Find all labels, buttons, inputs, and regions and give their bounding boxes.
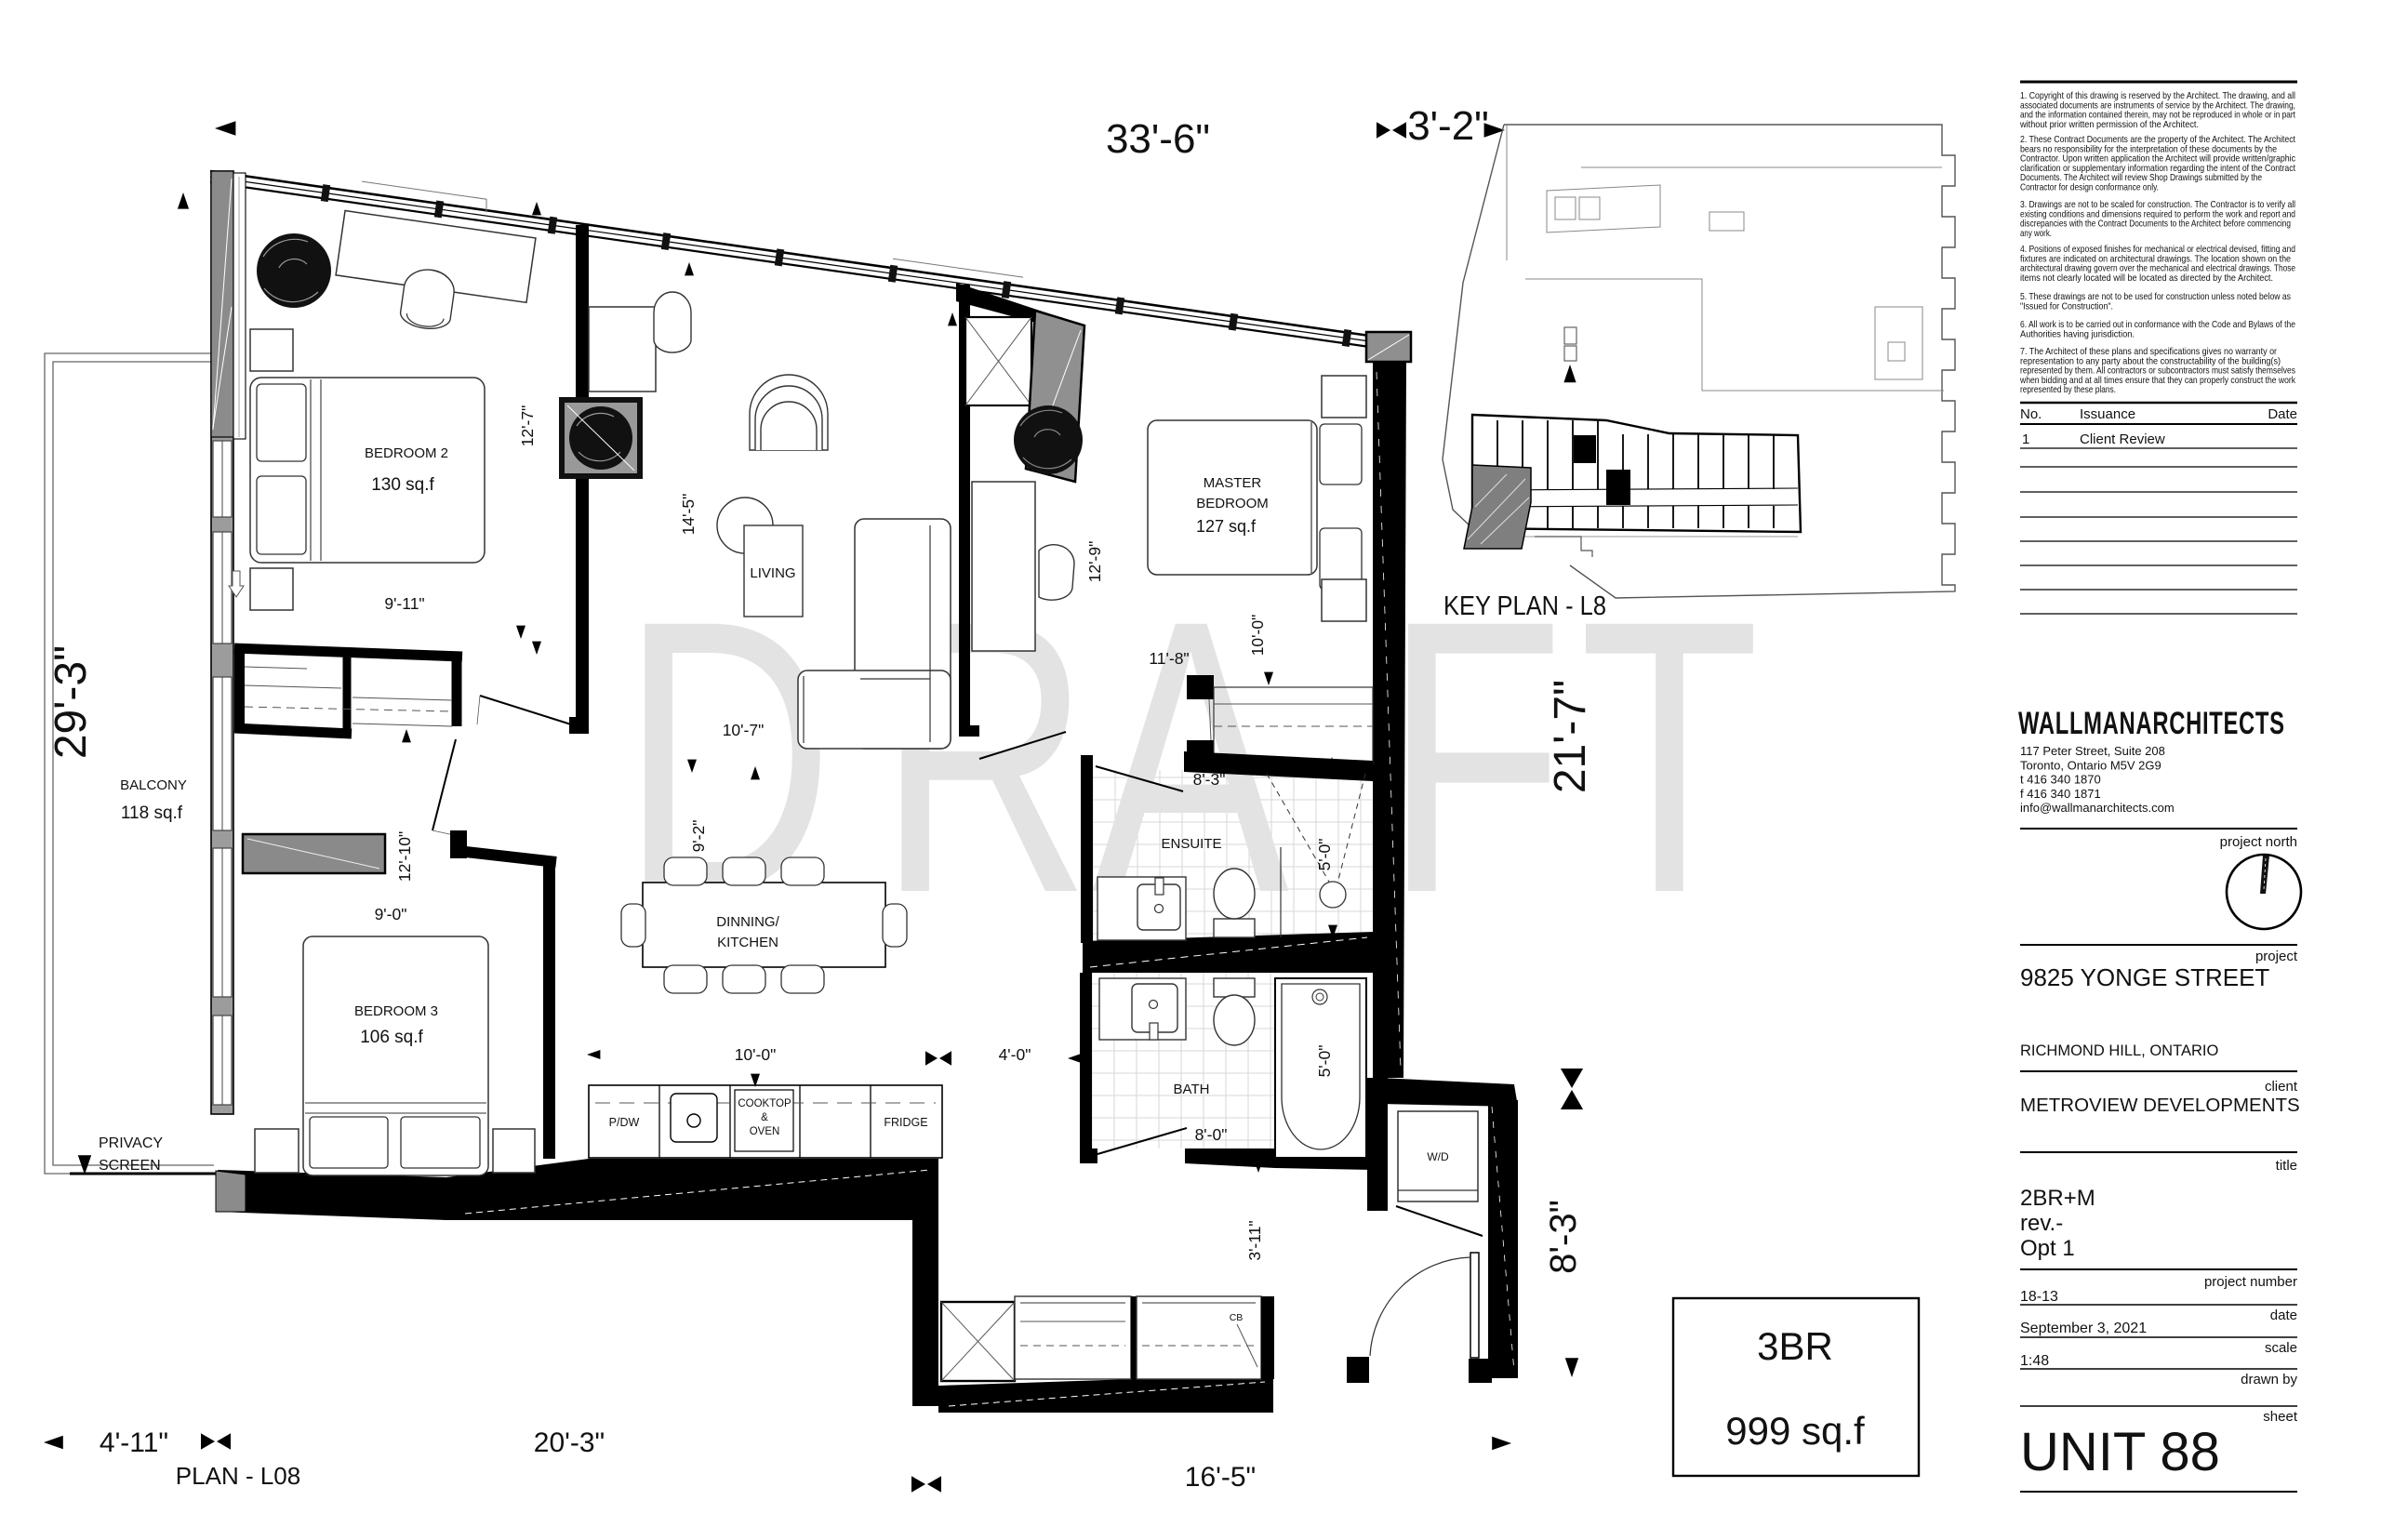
svg-text:BALCONY: BALCONY — [120, 777, 187, 793]
svg-text:9'-0": 9'-0" — [375, 905, 407, 923]
svg-text:info@wallmanarchitects.com: info@wallmanarchitects.com — [2020, 801, 2175, 815]
svg-text:sheet: sheet — [2263, 1409, 2298, 1425]
svg-text:LIVING: LIVING — [750, 565, 795, 581]
svg-text:project north: project north — [2220, 834, 2297, 850]
svg-text:10'-0": 10'-0" — [1248, 615, 1267, 657]
svg-text:PLAN - L08: PLAN - L08 — [176, 1462, 300, 1490]
svg-text:Date: Date — [2268, 406, 2297, 422]
svg-text:FRIDGE: FRIDGE — [884, 1116, 927, 1129]
svg-text:t 416 340 1870: t 416 340 1870 — [2020, 773, 2101, 787]
svg-text:drawn by: drawn by — [2241, 1372, 2297, 1387]
svg-text:project: project — [2255, 949, 2298, 964]
svg-text:METROVIEW DEVELOPMENTS: METROVIEW DEVELOPMENTS — [2020, 1095, 2300, 1116]
svg-text:4'-11": 4'-11" — [100, 1427, 168, 1458]
svg-text:ENSUITE: ENSUITE — [1161, 836, 1221, 852]
svg-text:999 sq.f: 999 sq.f — [1725, 1409, 1865, 1453]
svg-text:106 sq.f: 106 sq.f — [360, 1028, 423, 1047]
svg-text:BEDROOM 3: BEDROOM 3 — [354, 1003, 438, 1019]
svg-text:1: 1 — [2022, 431, 2029, 447]
svg-text:discrepancies with the Contrac: discrepancies with the Contract Document… — [2020, 219, 2291, 230]
svg-text:18-13: 18-13 — [2020, 1289, 2058, 1305]
svg-text:items not clearly located will: items not clearly located will be locate… — [2020, 272, 2273, 284]
svg-text:rev.-: rev.- — [2020, 1211, 2063, 1236]
svg-text:COOKTOP: COOKTOP — [738, 1098, 791, 1109]
svg-text:KITCHEN: KITCHEN — [717, 935, 778, 950]
svg-text:Authorities having jurisdictio: Authorities having jurisdiction. — [2020, 328, 2135, 339]
svg-text:12'-9": 12'-9" — [1085, 541, 1104, 583]
svg-text:BEDROOM: BEDROOM — [1196, 496, 1269, 511]
svg-text:RICHMOND HILL, ONTARIO: RICHMOND HILL, ONTARIO — [2020, 1042, 2218, 1059]
svg-text:16'-5": 16'-5" — [1185, 1462, 1256, 1493]
svg-text:10'-0": 10'-0" — [735, 1045, 777, 1064]
svg-text:CB: CB — [1230, 1312, 1244, 1323]
svg-text:8'-0": 8'-0" — [1195, 1125, 1228, 1144]
svg-text:any work.: any work. — [2020, 228, 2052, 239]
svg-text:BEDROOM 2: BEDROOM 2 — [365, 445, 448, 461]
svg-text:9'-11": 9'-11" — [384, 594, 424, 613]
svg-text:3BR: 3BR — [1757, 1324, 1833, 1368]
svg-text:11'-8": 11'-8" — [1149, 649, 1189, 668]
svg-text:scale: scale — [2265, 1340, 2297, 1356]
svg-text:130 sq.f: 130 sq.f — [371, 475, 434, 495]
svg-text:f 416 340 1871: f 416 340 1871 — [2020, 787, 2101, 801]
svg-text:represented by these plans.: represented by these plans. — [2020, 384, 2116, 395]
svg-text:Client Review: Client Review — [2080, 431, 2165, 447]
svg-text:KEY PLAN - L8: KEY PLAN - L8 — [1443, 591, 1606, 621]
svg-text:14'-5": 14'-5" — [679, 494, 698, 536]
svg-text:SCREEN: SCREEN — [99, 1158, 161, 1174]
svg-text:2BR+M: 2BR+M — [2020, 1186, 2095, 1211]
svg-text:Contractor for design conforma: Contractor for design conformance only. — [2020, 182, 2159, 193]
svg-text:8'-3": 8'-3" — [1543, 1200, 1584, 1274]
svg-text:12'-7": 12'-7" — [518, 405, 537, 447]
svg-text:8'-3": 8'-3" — [1193, 770, 1226, 789]
svg-text:3'-2": 3'-2" — [1407, 103, 1489, 149]
svg-text:OVEN: OVEN — [750, 1126, 780, 1137]
svg-text:"Issued for Construction".: "Issued for Construction". — [2020, 300, 2113, 312]
svg-text:118 sq.f: 118 sq.f — [121, 803, 183, 823]
svg-text:No.: No. — [2020, 406, 2042, 422]
svg-text:33'-6": 33'-6" — [1106, 116, 1210, 162]
svg-text:1:48: 1:48 — [2020, 1353, 2049, 1369]
svg-text:&: & — [761, 1112, 768, 1123]
svg-text:without prior written permissi: without prior written permission of the … — [2019, 119, 2199, 130]
svg-text:127 sq.f: 127 sq.f — [1196, 517, 1257, 536]
svg-text:W/D: W/D — [1427, 1150, 1449, 1163]
svg-text:Opt 1: Opt 1 — [2020, 1236, 2075, 1261]
svg-text:5'-0": 5'-0" — [1315, 839, 1334, 871]
svg-text:MASTER: MASTER — [1204, 475, 1262, 491]
svg-text:BATH: BATH — [1174, 1082, 1210, 1097]
svg-text:UNIT 88: UNIT 88 — [2020, 1422, 2220, 1482]
svg-text:5'-0": 5'-0" — [1315, 1045, 1334, 1078]
svg-text:Toronto, Ontario M5V 2G9: Toronto, Ontario M5V 2G9 — [2020, 758, 2162, 772]
svg-text:20'-3": 20'-3" — [534, 1427, 605, 1458]
svg-text:12'-10": 12'-10" — [395, 831, 414, 882]
svg-text:117 Peter Street, Suite 208: 117 Peter Street, Suite 208 — [2020, 744, 2165, 758]
svg-text:Issuance: Issuance — [2080, 406, 2135, 422]
svg-text:DINNING/: DINNING/ — [716, 914, 779, 930]
svg-text:PRIVACY: PRIVACY — [99, 1135, 163, 1151]
svg-text:project number: project number — [2204, 1274, 2297, 1290]
svg-text:10'-7": 10'-7" — [723, 721, 765, 739]
svg-text:P/DW: P/DW — [609, 1116, 640, 1129]
svg-text:3'-11": 3'-11" — [1245, 1220, 1264, 1260]
svg-text:29'-3": 29'-3" — [47, 645, 96, 759]
svg-text:title: title — [2276, 1158, 2297, 1174]
svg-text:WALLMANARCHITECTS: WALLMANARCHITECTS — [2018, 706, 2285, 741]
svg-text:client: client — [2265, 1079, 2298, 1095]
svg-text:September 3, 2021: September 3, 2021 — [2020, 1321, 2147, 1336]
svg-text:4'-0": 4'-0" — [999, 1045, 1031, 1064]
svg-text:9825 YONGE STREET: 9825 YONGE STREET — [2020, 963, 2269, 991]
svg-text:9'-2": 9'-2" — [689, 820, 708, 853]
svg-text:21'-7": 21'-7" — [1546, 680, 1595, 793]
svg-text:T: T — [1579, 539, 1760, 974]
svg-text:date: date — [2270, 1308, 2297, 1323]
